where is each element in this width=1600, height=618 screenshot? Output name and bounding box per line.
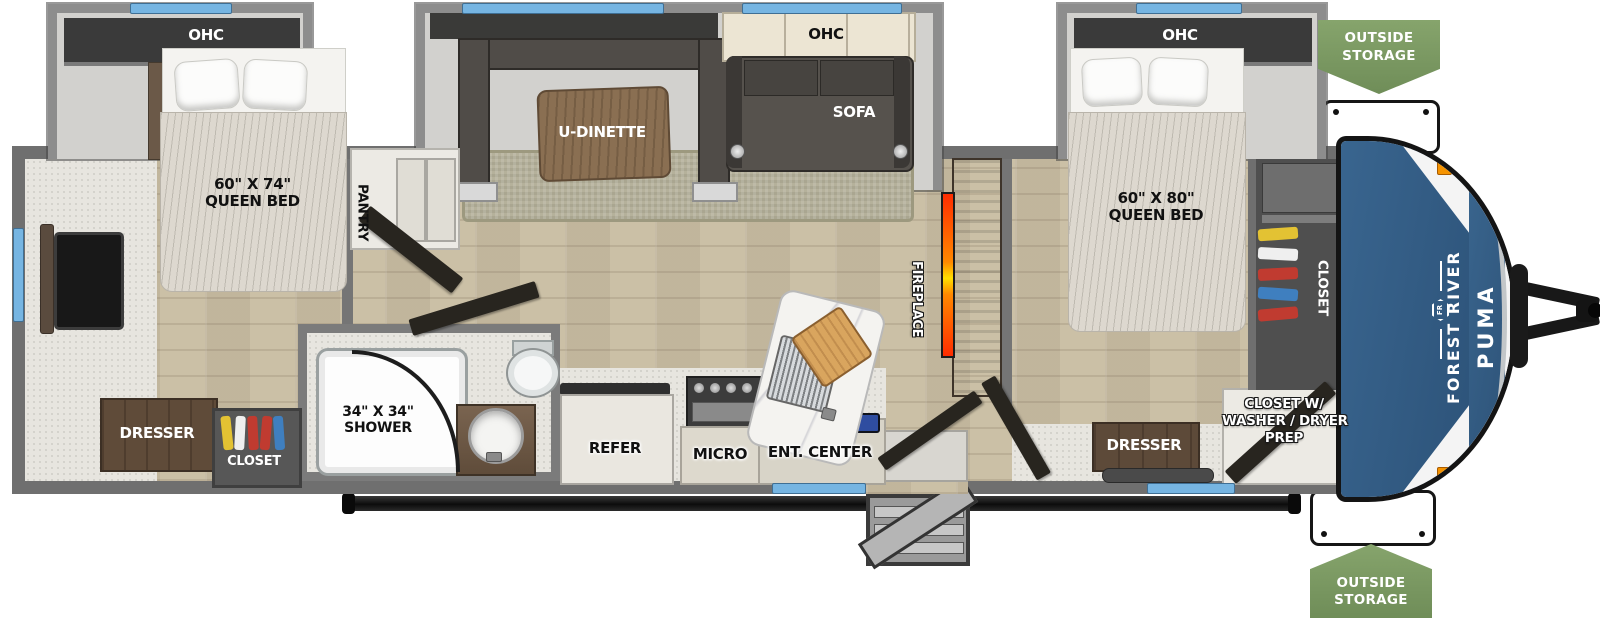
closet-shelf [1262, 163, 1342, 213]
sofa-ohc-label: OHC [790, 26, 862, 43]
fireplace-insert [941, 192, 955, 358]
front-bed-pillow [1081, 56, 1143, 107]
sofa-label: SOFA [816, 104, 892, 121]
awning-endcap-right [1288, 493, 1301, 514]
sofa-cupholder-icon [730, 144, 745, 159]
pantry-label: PANTRY [354, 160, 370, 265]
sofa-back-cushion [820, 60, 894, 96]
front-dresser-bench [1102, 468, 1214, 483]
washer-closet-label: CLOSET W/ WASHER / DRYER PREP [1222, 396, 1346, 447]
rivet-icon [1419, 531, 1425, 537]
toilet-bowl [506, 348, 560, 398]
rear-bed-label: 60" X 74" QUEEN BED [160, 176, 345, 211]
outside-storage-badge-top: OUTSIDE STORAGE [1318, 20, 1440, 94]
fireplace-label: FIREPLACE [908, 232, 923, 367]
fireplace-cabinet [952, 158, 1002, 397]
outside-storage-badge-bottom-text: OUTSIDE STORAGE [1310, 575, 1432, 610]
brand-dash [1440, 329, 1442, 359]
tv-mount-bar [40, 224, 54, 334]
oven-front [692, 402, 756, 422]
rear-bed-pillow [242, 58, 309, 111]
awning-endcap-left [342, 493, 355, 514]
rear-bed-pillow [173, 58, 240, 112]
window [742, 3, 902, 14]
window [13, 228, 24, 322]
window [130, 3, 232, 14]
tv-screen [54, 232, 124, 330]
front-dresser-label: DRESSER [1092, 437, 1196, 454]
dinette-label: U-DINETTE [538, 124, 666, 141]
rear-dresser-label: DRESSER [100, 425, 214, 442]
hitch-ball [1588, 303, 1600, 318]
clearance-light-icon [1437, 467, 1452, 485]
outside-storage-badge-bottom: OUTSIDE STORAGE [1310, 544, 1432, 618]
floorplan-stage: OHC 60" X 74" QUEEN BED U-DINETTE OHC SO… [0, 0, 1600, 618]
burner-icon [726, 383, 736, 393]
clothes-icon [247, 416, 259, 450]
front-cap: FR FOREST RIVER PUMA [1336, 136, 1518, 502]
entertainment-label: ENT. CENTER [756, 444, 884, 461]
clothes-icon [1258, 267, 1299, 281]
outside-storage-badge-top-text: OUTSIDE STORAGE [1318, 30, 1440, 65]
clothes-icon [234, 416, 246, 450]
clearance-light-icon [1437, 157, 1452, 175]
sink-faucet-icon [486, 452, 502, 462]
shower-label: 34" X 34" SHOWER [318, 404, 438, 436]
rear-closet-label: CLOSET [212, 455, 296, 470]
awning-roller [348, 496, 1296, 511]
closet-shelf [1262, 215, 1340, 223]
front-bed-label: 60" X 80" QUEEN BED [1068, 190, 1244, 225]
island-faucet-icon [820, 407, 836, 422]
burner-icon [710, 383, 720, 393]
microwave-label: MICRO [680, 446, 760, 463]
front-closet-label: CLOSET [1314, 238, 1330, 338]
clothes-icon [1258, 247, 1299, 261]
brand-dash [1440, 261, 1442, 291]
rivet-icon [1423, 109, 1429, 115]
rivet-icon [1333, 109, 1339, 115]
burner-icon [742, 383, 752, 393]
window [772, 483, 866, 494]
window [1136, 3, 1242, 14]
rivet-icon [1321, 531, 1327, 537]
pantry-door-panel [426, 158, 456, 242]
dinette-bench-left [458, 38, 490, 192]
cap-latch-handle [1510, 264, 1528, 368]
refrigerator-label: REFER [560, 440, 670, 457]
window [1147, 483, 1235, 494]
brand-forest-river: FOREST RIVER [1445, 215, 1463, 439]
brand-puma: PUMA [1474, 267, 1498, 385]
front-ohc-label: OHC [1144, 27, 1216, 44]
burner-icon [694, 383, 704, 393]
dinette-bench-back [458, 38, 730, 70]
sofa-cupholder-icon [893, 144, 908, 159]
dinette-bench-endcap [692, 182, 738, 202]
front-bed-pillow [1147, 56, 1209, 107]
sofa-back-cushion [744, 60, 818, 96]
dinette-valance [430, 13, 718, 39]
window [462, 3, 664, 14]
rear-ohc-label: OHC [170, 27, 242, 44]
